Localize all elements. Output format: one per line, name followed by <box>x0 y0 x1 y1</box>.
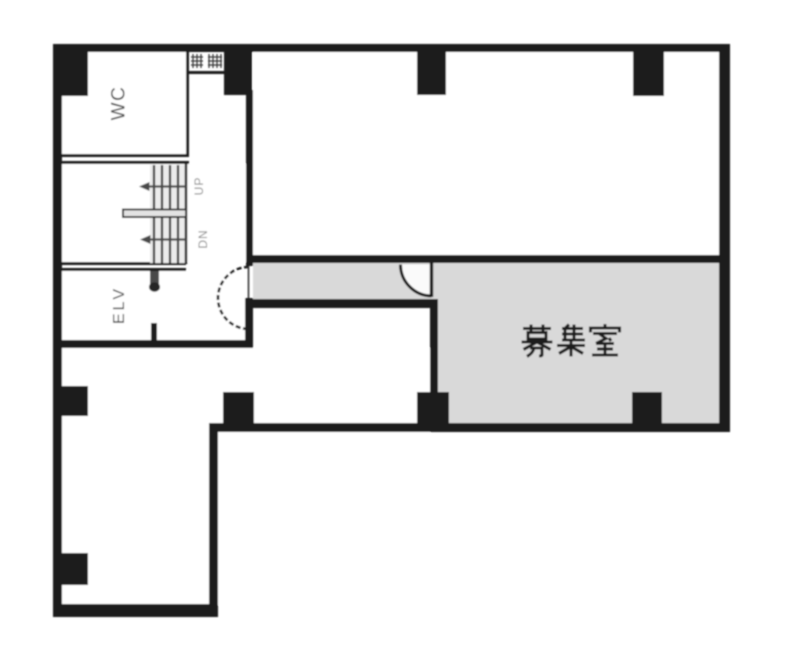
svg-text:DN: DN <box>196 229 210 248</box>
svg-text:ELV: ELV <box>111 286 128 324</box>
svg-text:UP: UP <box>192 177 206 196</box>
svg-text:WC: WC <box>109 86 130 121</box>
